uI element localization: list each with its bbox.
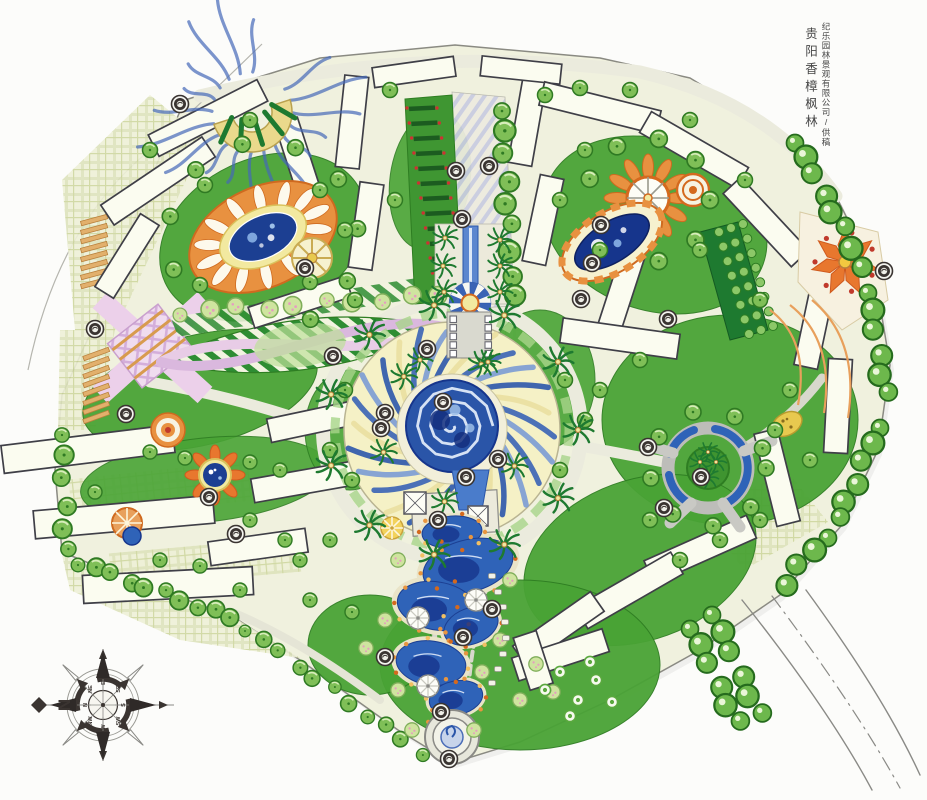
flowering-tree-icon (227, 298, 243, 314)
keyed-callout-marker (876, 263, 893, 280)
spiral-target-paving (151, 413, 185, 447)
tree-icon (719, 641, 739, 661)
tree-icon (278, 533, 292, 547)
tree-icon (573, 81, 588, 96)
flowering-tree-icon (391, 553, 405, 567)
keyed-callout-marker (377, 649, 394, 666)
tree-icon (58, 498, 76, 516)
sapling-icon (554, 666, 565, 677)
umbrella-icon (407, 607, 429, 629)
flowering-tree-icon (374, 294, 390, 310)
keyed-callout-marker (490, 451, 507, 468)
compass-label-e: E (101, 681, 107, 685)
tree-icon (494, 120, 516, 142)
keyed-callout-marker (573, 291, 590, 308)
tree-icon (178, 451, 192, 465)
tree-icon (243, 513, 257, 527)
sapling-icon (564, 710, 575, 721)
keyed-callout-marker (481, 158, 498, 175)
tree-icon (193, 559, 207, 573)
tree-icon (256, 631, 272, 647)
keyed-callout-marker (435, 394, 452, 411)
tree-icon (493, 144, 512, 163)
tree-icon (714, 694, 736, 716)
tree-icon (832, 508, 850, 526)
flowering-tree-icon (201, 300, 219, 318)
flowering-tree-icon (261, 301, 278, 318)
tree-icon (538, 88, 553, 103)
flowering-tree-icon (284, 297, 302, 315)
tree-icon (88, 485, 102, 499)
tree-icon (783, 383, 798, 398)
tree-icon (713, 533, 728, 548)
tree-icon (339, 273, 355, 289)
tree-icon (643, 513, 658, 528)
tree-icon (753, 293, 768, 308)
keyed-callout-marker (593, 217, 610, 234)
tree-icon (755, 440, 771, 456)
sapling-icon (539, 684, 550, 695)
building-footprint (824, 358, 853, 453)
tree-icon (170, 591, 188, 609)
tree-icon (712, 620, 735, 643)
tree-icon (687, 152, 704, 169)
keyed-callout-marker (448, 163, 465, 180)
flowering-tree-icon (320, 293, 334, 307)
keyed-callout-marker (87, 321, 104, 338)
tree-icon (239, 625, 251, 637)
tree-icon (416, 749, 429, 762)
tree-icon (650, 253, 667, 270)
tree-icon (623, 83, 638, 98)
keyed-callout-marker (458, 469, 475, 486)
keyed-callout-marker (373, 420, 390, 437)
credit-line: 纪乐园林景观有限公司/供稿 (820, 22, 832, 147)
tree-icon (705, 518, 721, 534)
tree-icon (553, 193, 568, 208)
tree-icon (633, 353, 648, 368)
flowering-tree-icon (173, 308, 187, 322)
tree-icon (851, 451, 871, 471)
tree-icon (553, 463, 568, 478)
tree-icon (802, 163, 822, 183)
tree-icon (323, 533, 337, 547)
flowering-tree-icon (391, 683, 405, 697)
tree-icon (379, 717, 394, 732)
tree-icon (143, 143, 158, 158)
tree-icon (341, 696, 357, 712)
tree-icon (303, 593, 317, 607)
tree-icon (153, 553, 167, 567)
tree-icon (836, 217, 854, 235)
tree-icon (754, 704, 772, 722)
tree-icon (685, 404, 701, 420)
tree-icon (338, 223, 353, 238)
tree-icon (558, 373, 573, 388)
tree-icon (673, 553, 688, 568)
tree-icon (758, 460, 774, 476)
masterplan-page: N N NE E SE S SW W NW 贵阳香樟枫林 纪乐园林景观有限公司/… (0, 0, 927, 800)
tree-icon (863, 320, 883, 340)
tree-icon (776, 575, 797, 596)
tree-icon (650, 130, 667, 147)
tree-icon (702, 192, 719, 209)
keyed-callout-marker (454, 211, 471, 228)
tree-icon (143, 445, 157, 459)
flowering-tree-icon (378, 613, 392, 627)
tree-icon (243, 113, 258, 128)
tree-icon (862, 299, 885, 322)
umbrella-icon (417, 675, 439, 697)
tree-icon (288, 140, 304, 156)
keyed-callout-marker (441, 751, 458, 768)
tree-icon (330, 171, 346, 187)
tree-icon (693, 243, 708, 258)
keyed-callout-marker (201, 489, 218, 506)
keyed-callout-marker (419, 341, 436, 358)
tree-icon (233, 583, 247, 597)
tree-icon (190, 600, 206, 616)
keyed-callout-marker (433, 704, 450, 721)
flowering-tree-icon (467, 723, 481, 737)
compass-label-se: SE (116, 685, 122, 693)
tree-icon (786, 555, 806, 575)
compass-diamond (31, 697, 47, 713)
tree-icon (304, 671, 320, 687)
keyed-callout-marker (640, 439, 657, 456)
compass-label-n: N (83, 703, 89, 707)
tree-icon (852, 257, 872, 277)
tree-icon (345, 473, 360, 488)
tree-icon (271, 643, 285, 657)
keyed-callout-marker (172, 96, 189, 113)
tree-icon (55, 428, 69, 442)
flowering-tree-icon (513, 693, 527, 707)
compass-label-nw: NW (88, 716, 94, 726)
tree-icon (243, 455, 257, 469)
flowering-tree-icon (359, 641, 373, 655)
tree-icon (361, 710, 375, 724)
keyed-callout-marker (228, 526, 245, 543)
tree-icon (329, 681, 341, 693)
tree-icon (71, 558, 85, 572)
keyed-callout-marker (430, 512, 447, 529)
sapling-icon (606, 696, 617, 707)
tree-icon (683, 113, 698, 128)
tree-icon (593, 383, 608, 398)
compass-label-w: W (101, 724, 107, 730)
flowering-tree-icon (475, 665, 489, 679)
tree-icon (193, 278, 208, 293)
keyed-callout-marker (297, 260, 314, 277)
tree-icon (840, 237, 863, 260)
tree-icon (803, 539, 826, 562)
tree-icon (736, 685, 758, 707)
compass-label-sw: SW (116, 716, 122, 726)
tree-icon (383, 83, 398, 98)
keyed-callout-marker (325, 348, 342, 365)
keyed-callout-marker (584, 255, 601, 272)
sapling-icon (590, 674, 601, 685)
umbrella-icon (381, 517, 403, 539)
tree-icon (500, 172, 520, 192)
project-title: 贵阳香樟枫林 (801, 27, 820, 132)
tree-icon (221, 609, 239, 627)
keyed-callout-marker (660, 311, 677, 328)
keyed-callout-marker (693, 469, 710, 486)
tree-icon (348, 293, 363, 308)
compass-label-ne: NE (88, 685, 94, 693)
tree-icon (503, 215, 520, 232)
tree-icon (135, 579, 153, 597)
tree-icon (273, 463, 287, 477)
flowering-tree-icon (529, 657, 543, 671)
tree-icon (494, 103, 510, 119)
tree-icon (162, 208, 178, 224)
tree-icon (753, 513, 768, 528)
tree-icon (643, 470, 659, 486)
compass-rose: N N NE E SE S SW W NW (31, 649, 174, 761)
keyed-callout-marker (656, 500, 673, 517)
tree-icon (738, 173, 753, 188)
pergola-colonnade (447, 312, 492, 358)
sapling-icon (584, 656, 595, 667)
tree-icon (727, 409, 743, 425)
tree-icon (53, 519, 72, 538)
tree-icon (768, 423, 783, 438)
flowering-tree-icon (503, 573, 517, 587)
compass-north-letter: N (55, 699, 74, 711)
keyed-callout-marker (118, 406, 135, 423)
tree-icon (234, 136, 250, 152)
keyed-callout-marker (455, 629, 472, 646)
tree-icon (166, 262, 182, 278)
compass-label-s: S (121, 703, 127, 707)
tree-icon (303, 311, 319, 327)
tree-icon (880, 383, 898, 401)
tree-icon (313, 183, 328, 198)
tree-icon (102, 564, 118, 580)
tree-icon (53, 469, 70, 486)
tree-icon (609, 138, 626, 155)
tree-icon (578, 143, 593, 158)
perimeter-road (742, 590, 920, 790)
site-plan-drawing: N N NE E SE S SW W NW (0, 0, 927, 800)
tree-icon (494, 193, 515, 214)
tree-icon (293, 553, 307, 567)
tree-icon (697, 653, 717, 673)
tree-icon (188, 162, 204, 178)
tree-icon (803, 453, 818, 468)
flowering-tree-icon (404, 286, 421, 303)
tree-icon (388, 193, 403, 208)
sapling-icon (572, 694, 583, 705)
flowering-tree-icon (405, 723, 419, 737)
tree-icon (61, 541, 76, 556)
tree-icon (54, 445, 73, 464)
tree-icon (198, 178, 213, 193)
tree-icon (345, 605, 359, 619)
keyed-callout-marker (484, 601, 501, 618)
tree-icon (581, 170, 598, 187)
tree-icon (732, 712, 750, 730)
